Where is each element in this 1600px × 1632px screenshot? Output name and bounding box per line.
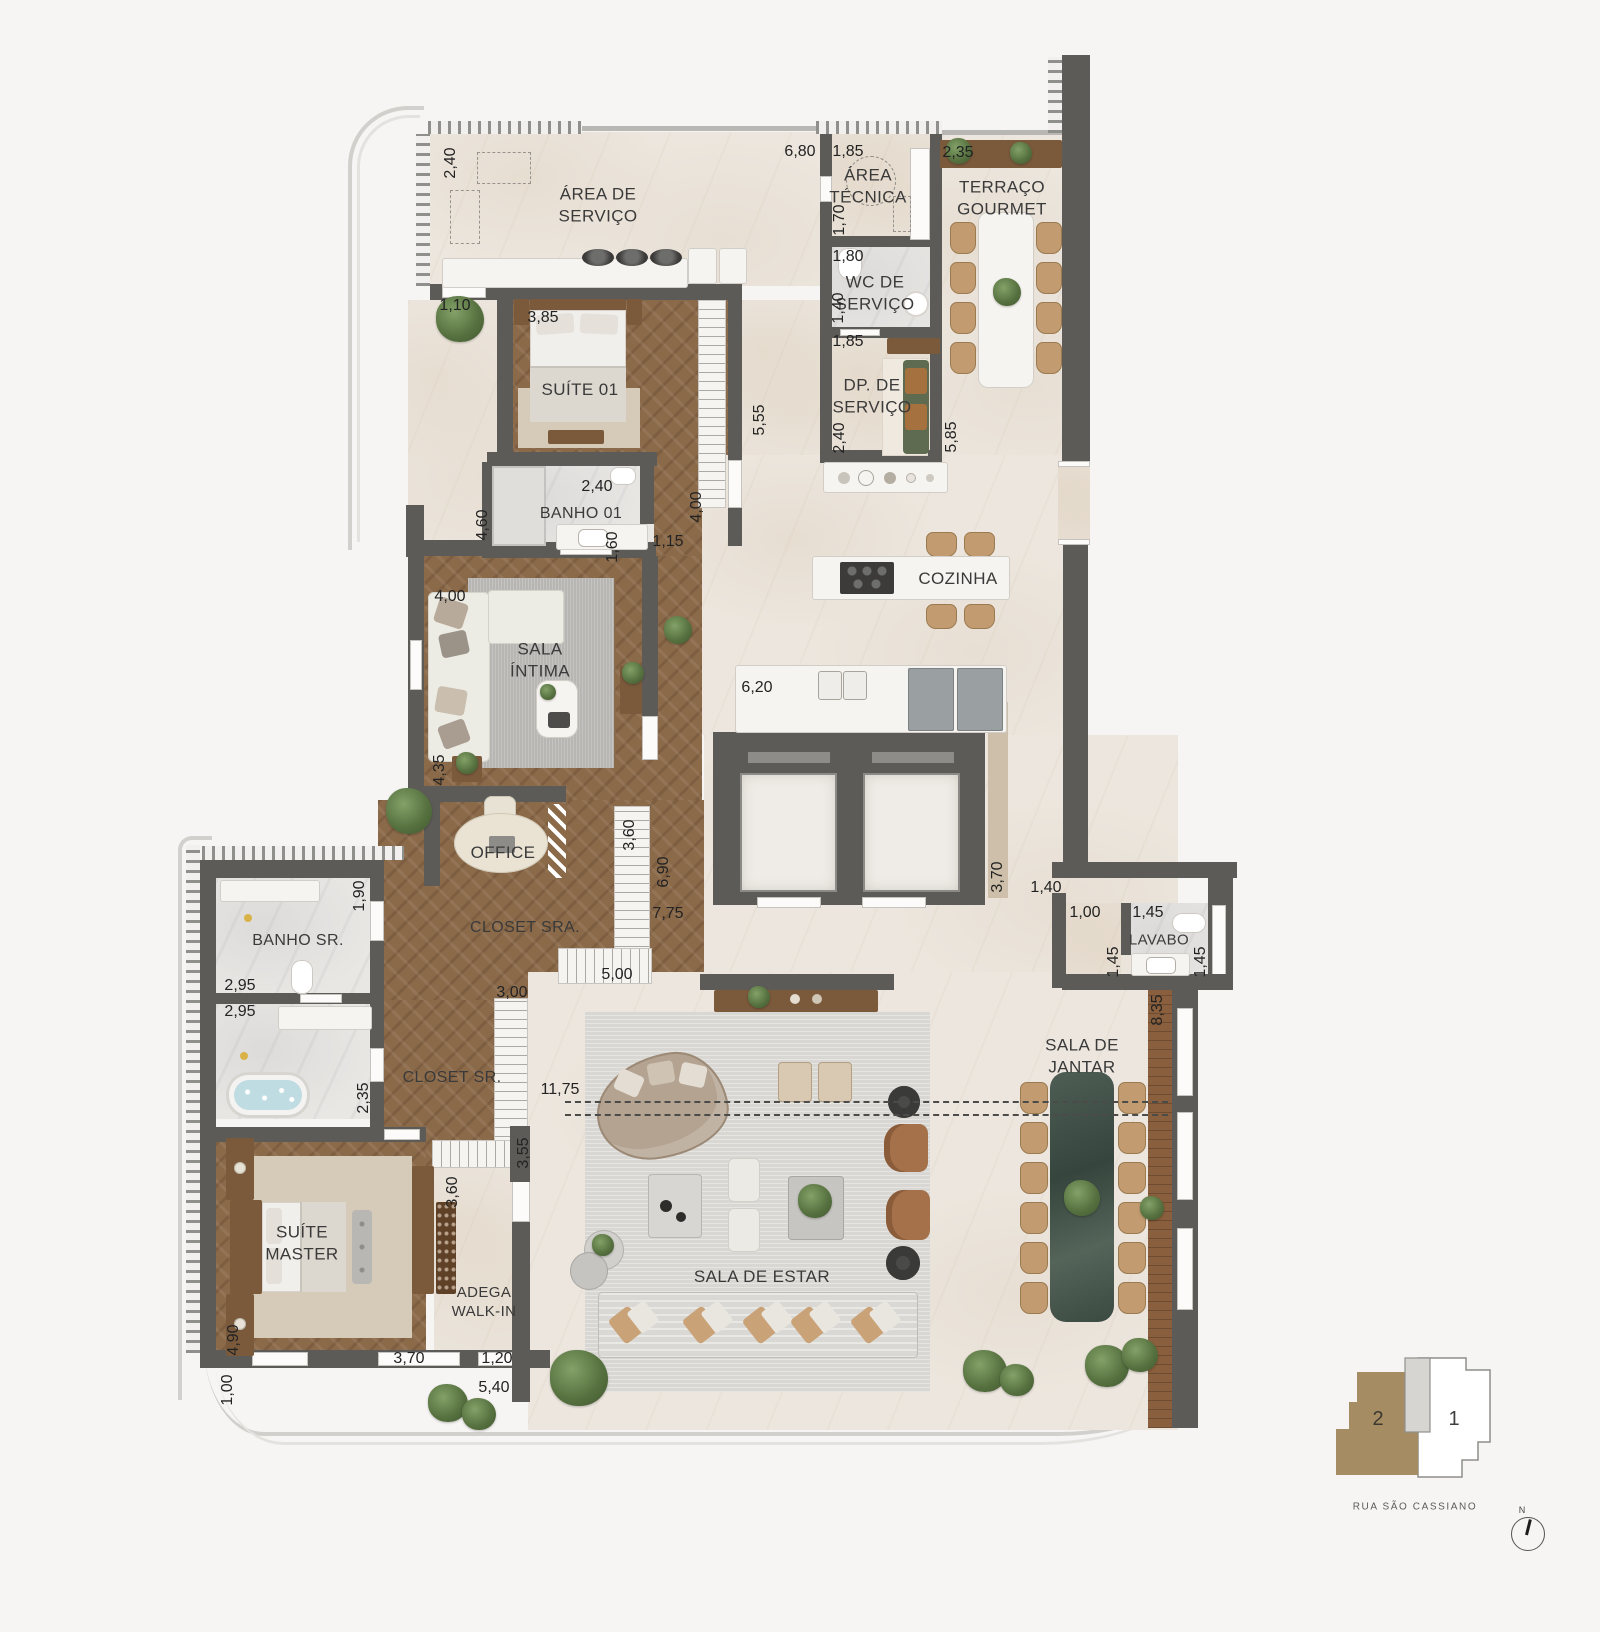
dim-label: 1,15 [652, 533, 683, 551]
washer [616, 249, 648, 266]
dining-chair [950, 302, 976, 334]
key-plan: 2 1 [1320, 1345, 1520, 1485]
washer [582, 249, 614, 266]
gold-fixture [240, 1052, 248, 1060]
kitchen-sink [818, 671, 842, 700]
dim-label: 3,55 [515, 1137, 533, 1168]
north-label: N [1519, 1505, 1526, 1515]
dim-label: 6,90 [655, 856, 673, 887]
room-label-suite01: SUÍTE 01 [542, 379, 619, 401]
door-opening [370, 901, 384, 941]
balcony-hatch-hall [416, 134, 430, 286]
elevator-sill [757, 897, 821, 908]
key-plan-street-label: RUA SÃO CASSIANO [1353, 1502, 1478, 1513]
wall [642, 556, 658, 736]
side-table-plant [592, 1234, 614, 1256]
wall [700, 974, 894, 990]
reference-line [565, 1101, 1168, 1103]
dim-label: 5,40 [478, 1379, 509, 1397]
lavabo-sink [1146, 957, 1176, 974]
dim-label: 2,95 [224, 977, 255, 995]
dining-chair [1118, 1082, 1146, 1114]
plant [1140, 1196, 1164, 1220]
dining-chair [1036, 302, 1062, 334]
room-label-terraco: TERRAÇO GOURMET [957, 176, 1047, 220]
toilet [610, 467, 636, 485]
dining-chair [950, 342, 976, 374]
counter-item [906, 473, 916, 483]
planter-plant [1010, 142, 1032, 164]
dp-dresser [887, 338, 940, 354]
dim-label: 1,20 [481, 1350, 512, 1368]
kitchen-stool [926, 532, 957, 557]
plant [1122, 1338, 1158, 1372]
wall [200, 860, 216, 1352]
room-label-cozinha: COZINHA [918, 568, 997, 590]
dining-chair [1020, 1242, 1048, 1274]
dining-chair [1036, 222, 1062, 254]
dim-label: 7,75 [652, 905, 683, 923]
headboard [230, 1200, 262, 1294]
window [1058, 461, 1090, 467]
laundry-counter [442, 258, 688, 288]
dim-label: 1,90 [351, 880, 369, 911]
dim-label: 5,55 [751, 404, 769, 435]
dining-table-plant [1064, 1180, 1100, 1216]
kitchen-stool [964, 532, 995, 557]
dim-label: 3,60 [444, 1176, 462, 1207]
lamp [234, 1162, 246, 1174]
future-appliance-dashed [477, 152, 531, 184]
dim-label: 3,60 [621, 819, 639, 850]
elevator-lintel [748, 752, 830, 763]
bay-niche [1058, 466, 1090, 540]
wall [487, 452, 657, 466]
kitchen-stool [964, 604, 995, 629]
window [1058, 539, 1090, 545]
dining-chair [1118, 1122, 1146, 1154]
door-opening [728, 460, 742, 508]
wall [930, 133, 942, 463]
kitchen-appliance [957, 668, 1003, 731]
balcony-hatch-column [1048, 57, 1062, 133]
reference-line [565, 1114, 1168, 1116]
dim-label: 4,00 [434, 588, 465, 606]
room-label-banho-sr: BANHO SR. [252, 931, 344, 951]
door-opening [370, 1048, 384, 1082]
dim-label: 1,80 [832, 248, 863, 266]
dim-label: 2,40 [831, 422, 849, 453]
cooktop [840, 562, 894, 594]
shelf-decor [812, 994, 822, 1004]
shaft-tecnica [910, 148, 930, 240]
plant [1000, 1364, 1034, 1396]
dim-label: 8,35 [1149, 994, 1167, 1025]
dining-chair [1020, 1282, 1048, 1314]
dim-label: 4,60 [474, 509, 492, 540]
espresso-set [676, 1212, 686, 1222]
dining-chair [1020, 1122, 1048, 1154]
dim-label: 4,00 [688, 491, 706, 522]
dim-label: 3,70 [393, 1350, 424, 1368]
wine-rack [436, 1202, 456, 1294]
room-label-adega: ADEGA WALK-IN [452, 1283, 517, 1321]
dining-chair [1020, 1202, 1048, 1234]
balcony-hatch-banho-sr [202, 846, 404, 860]
wall [497, 300, 513, 462]
key-plan-unit1-label: 1 [1448, 1408, 1459, 1430]
coffee-table [648, 1174, 702, 1238]
gold-fixture [244, 914, 252, 922]
dim-label: 6,80 [784, 143, 815, 161]
planter-table-plant [798, 1184, 832, 1218]
shelf-plant [748, 986, 770, 1008]
dim-label: 1,40 [1030, 879, 1061, 897]
structural-column [1062, 55, 1090, 493]
room-label-dp-servico: DP. DE SERVIÇO [832, 374, 911, 418]
dim-label: 1,85 [832, 143, 863, 161]
balcony-hatch-left [186, 845, 200, 1353]
dim-label: 1,45 [1105, 946, 1123, 977]
elevator-shaft-right [863, 773, 960, 892]
dim-label: 1,45 [1132, 904, 1163, 922]
floor-hall-service [742, 300, 820, 462]
wardrobe-suite01 [698, 300, 726, 508]
wall [640, 462, 654, 524]
dim-label: 6,20 [741, 679, 772, 697]
shower-banho01 [492, 466, 546, 546]
window [1177, 1112, 1193, 1200]
espresso-set [660, 1200, 672, 1212]
balcony-hatch-top [428, 121, 582, 134]
elevator-lintel [872, 752, 954, 763]
wall [1063, 493, 1088, 865]
wall [200, 860, 384, 878]
armchair [884, 1124, 928, 1172]
bed-bench-tufted [352, 1210, 372, 1284]
dim-label: 2,40 [581, 478, 612, 496]
dim-label: 1,70 [831, 204, 849, 235]
plant [462, 1398, 496, 1430]
dim-label: 2,40 [442, 147, 460, 178]
nightstand [627, 299, 642, 325]
dim-label: 2,35 [355, 1082, 373, 1113]
wall [406, 505, 424, 557]
window [1212, 905, 1226, 975]
dim-label: 2,95 [224, 1003, 255, 1021]
room-label-area-servico: ÁREA DE SERVIÇO [558, 183, 637, 227]
dining-chair [1118, 1282, 1146, 1314]
room-label-office: OFFICE [471, 842, 536, 864]
laundry-sink [688, 248, 717, 284]
dining-chair [1020, 1162, 1048, 1194]
counter-item [884, 472, 896, 484]
lounge-chair [818, 1062, 852, 1102]
dim-label: 1,45 [1192, 946, 1210, 977]
future-appliance-dashed [450, 190, 480, 244]
dim-label: 5,85 [943, 421, 961, 452]
dim-label: 3,85 [527, 309, 558, 327]
room-label-lavabo: LAVABO [1129, 930, 1189, 949]
dining-chair [950, 222, 976, 254]
dining-chair [950, 262, 976, 294]
vanity-banho-sr [220, 880, 320, 902]
dim-label: 4,90 [225, 1324, 243, 1355]
elevator-sill [862, 897, 926, 908]
dim-label: 5,00 [601, 966, 632, 984]
console-plant [622, 662, 644, 684]
pillow [580, 313, 619, 335]
sofa-intima-chaise [488, 590, 564, 644]
pouf [728, 1208, 760, 1252]
dining-chair [1036, 262, 1062, 294]
toilet [291, 960, 313, 994]
room-label-sala-estar: SALA DE ESTAR [694, 1266, 830, 1288]
sofa-pillow [434, 686, 468, 717]
kitchen-appliance [908, 668, 954, 731]
coffee-table-plant [540, 684, 556, 700]
kitchen-sink [843, 671, 867, 700]
armchair [886, 1190, 930, 1240]
room-label-banho01: BANHO 01 [540, 504, 622, 524]
wardrobe-wall [412, 1166, 434, 1294]
shelf-decor [790, 994, 800, 1004]
dim-label: 1,10 [439, 297, 470, 315]
wall [1052, 862, 1237, 878]
dim-label: 3,70 [989, 861, 1007, 892]
door-opening [642, 716, 658, 760]
key-plan-core [1405, 1358, 1430, 1432]
room-label-sala-intima: SALA ÍNTIMA [510, 638, 570, 682]
plant [550, 1350, 608, 1406]
counter-item [858, 470, 874, 486]
window [410, 640, 422, 690]
bed-bench [548, 430, 604, 444]
parapet-line [582, 126, 818, 131]
vanity-banho-sr-2 [278, 1006, 372, 1030]
door-opening [300, 994, 342, 1003]
washer [650, 249, 682, 266]
dim-label: 3,00 [496, 984, 527, 1002]
room-label-suite-master: SUÍTE MASTER [265, 1221, 338, 1265]
dim-label: 1,85 [832, 333, 863, 351]
dim-label: 1,40 [830, 292, 848, 323]
door-opening [384, 1129, 420, 1140]
balcony-hatch-tecnica [816, 121, 942, 134]
dim-label: 11,75 [541, 1081, 580, 1099]
bathtub-water [234, 1080, 302, 1110]
pocket-door-hatch [548, 804, 566, 878]
decor-tray [548, 712, 570, 728]
dim-label: 4,35 [431, 754, 449, 785]
window [1177, 1008, 1193, 1096]
counter-item [926, 474, 934, 482]
sofa-pillow [646, 1060, 675, 1086]
dining-chair [1118, 1242, 1146, 1274]
side-table-plant [456, 752, 478, 774]
dim-label: 1,60 [604, 531, 622, 562]
floor-plan-canvas: ÁREA DE SERVIÇO ÁREA TÉCNICA TERRAÇO GOU… [0, 0, 1600, 1632]
plant [664, 616, 692, 644]
parapet-line [942, 130, 1062, 135]
lounge-chair [778, 1062, 812, 1102]
door-opening [252, 1352, 308, 1366]
key-plan-unit2-label: 2 [1372, 1408, 1383, 1430]
table-plant [993, 278, 1021, 306]
dining-chair [1036, 342, 1062, 374]
room-label-sala-jantar: SALA DE JANTAR [1045, 1034, 1119, 1078]
dining-chair [1020, 1082, 1048, 1114]
dining-chair [1118, 1162, 1146, 1194]
dim-label: 1,00 [1069, 904, 1100, 922]
room-label-closet-sra: CLOSET SRA. [470, 918, 580, 938]
pouf [728, 1158, 760, 1202]
counter-item [838, 472, 850, 484]
floor-lamp [886, 1246, 920, 1280]
door-opening [512, 1180, 530, 1222]
dim-label: 2,35 [942, 144, 973, 162]
laundry-sink [719, 248, 747, 284]
dim-label: 1,00 [219, 1374, 237, 1405]
room-label-area-tecnica: ÁREA TÉCNICA [829, 164, 906, 208]
kitchen-stool [926, 604, 957, 629]
window [1177, 1228, 1193, 1310]
plant [386, 788, 432, 834]
side-table-round [570, 1252, 608, 1290]
elevator-shaft-left [740, 773, 837, 892]
room-label-closet-sr: CLOSET SR. [403, 1068, 502, 1088]
